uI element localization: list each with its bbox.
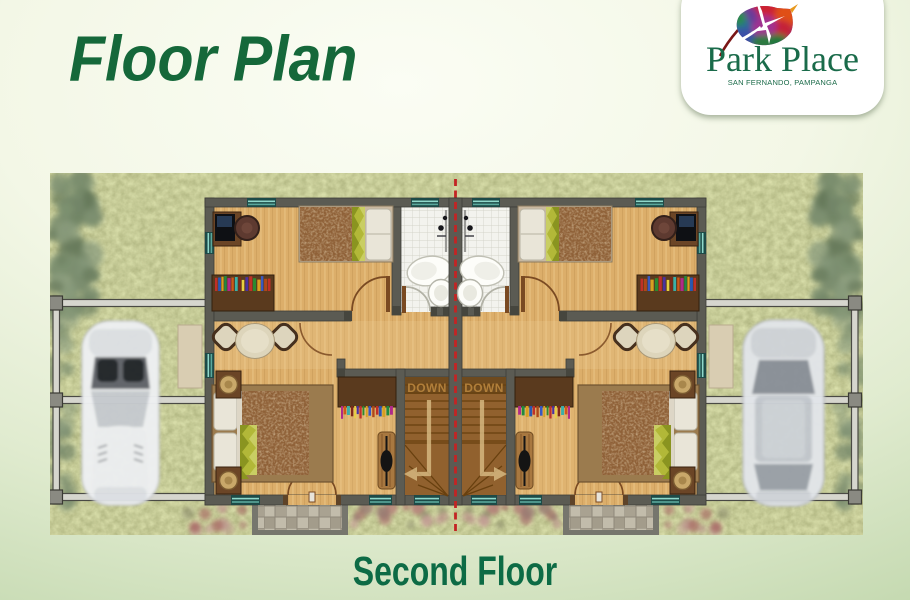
svg-text:DOWN: DOWN <box>407 381 447 395</box>
svg-text:DOWN: DOWN <box>464 381 504 395</box>
